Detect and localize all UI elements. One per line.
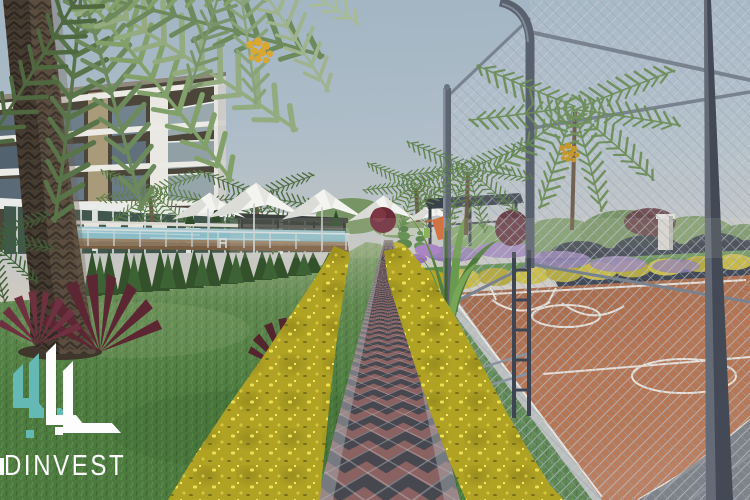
architectural-render: DINVEST [0, 0, 750, 500]
horizon-haze [230, 218, 750, 258]
